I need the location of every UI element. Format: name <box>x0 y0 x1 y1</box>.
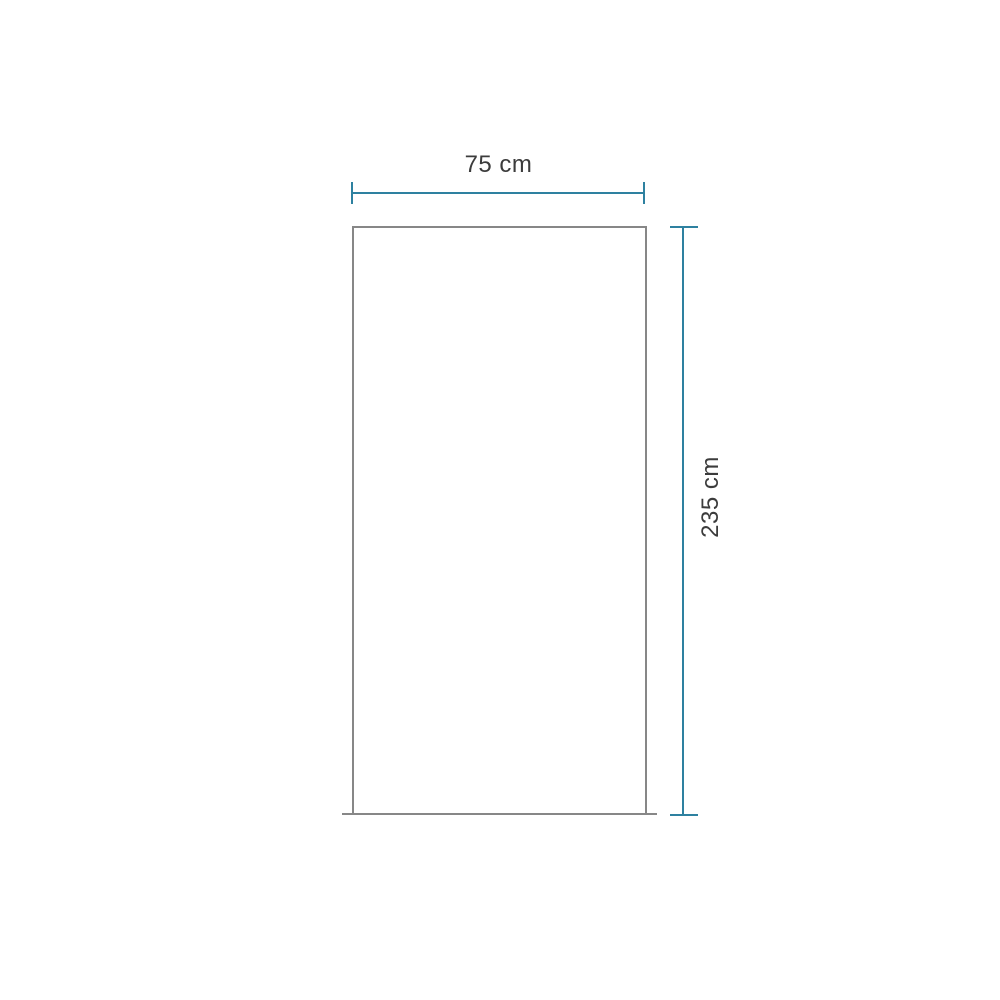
diagram-canvas: 75 cm 235 cm <box>0 0 1000 1000</box>
panel-baseline <box>342 813 657 815</box>
width-dimension-label: 75 cm <box>352 150 645 180</box>
height-dimension-label: 235 cm <box>696 437 726 557</box>
height-dimension-top-tick <box>670 226 698 228</box>
height-dimension-bottom-tick <box>670 814 698 816</box>
width-dimension-line <box>352 192 645 194</box>
panel-rectangle <box>352 226 647 815</box>
width-dimension-left-tick <box>351 182 353 204</box>
height-dimension-line <box>682 226 684 816</box>
width-dimension-right-tick <box>643 182 645 204</box>
